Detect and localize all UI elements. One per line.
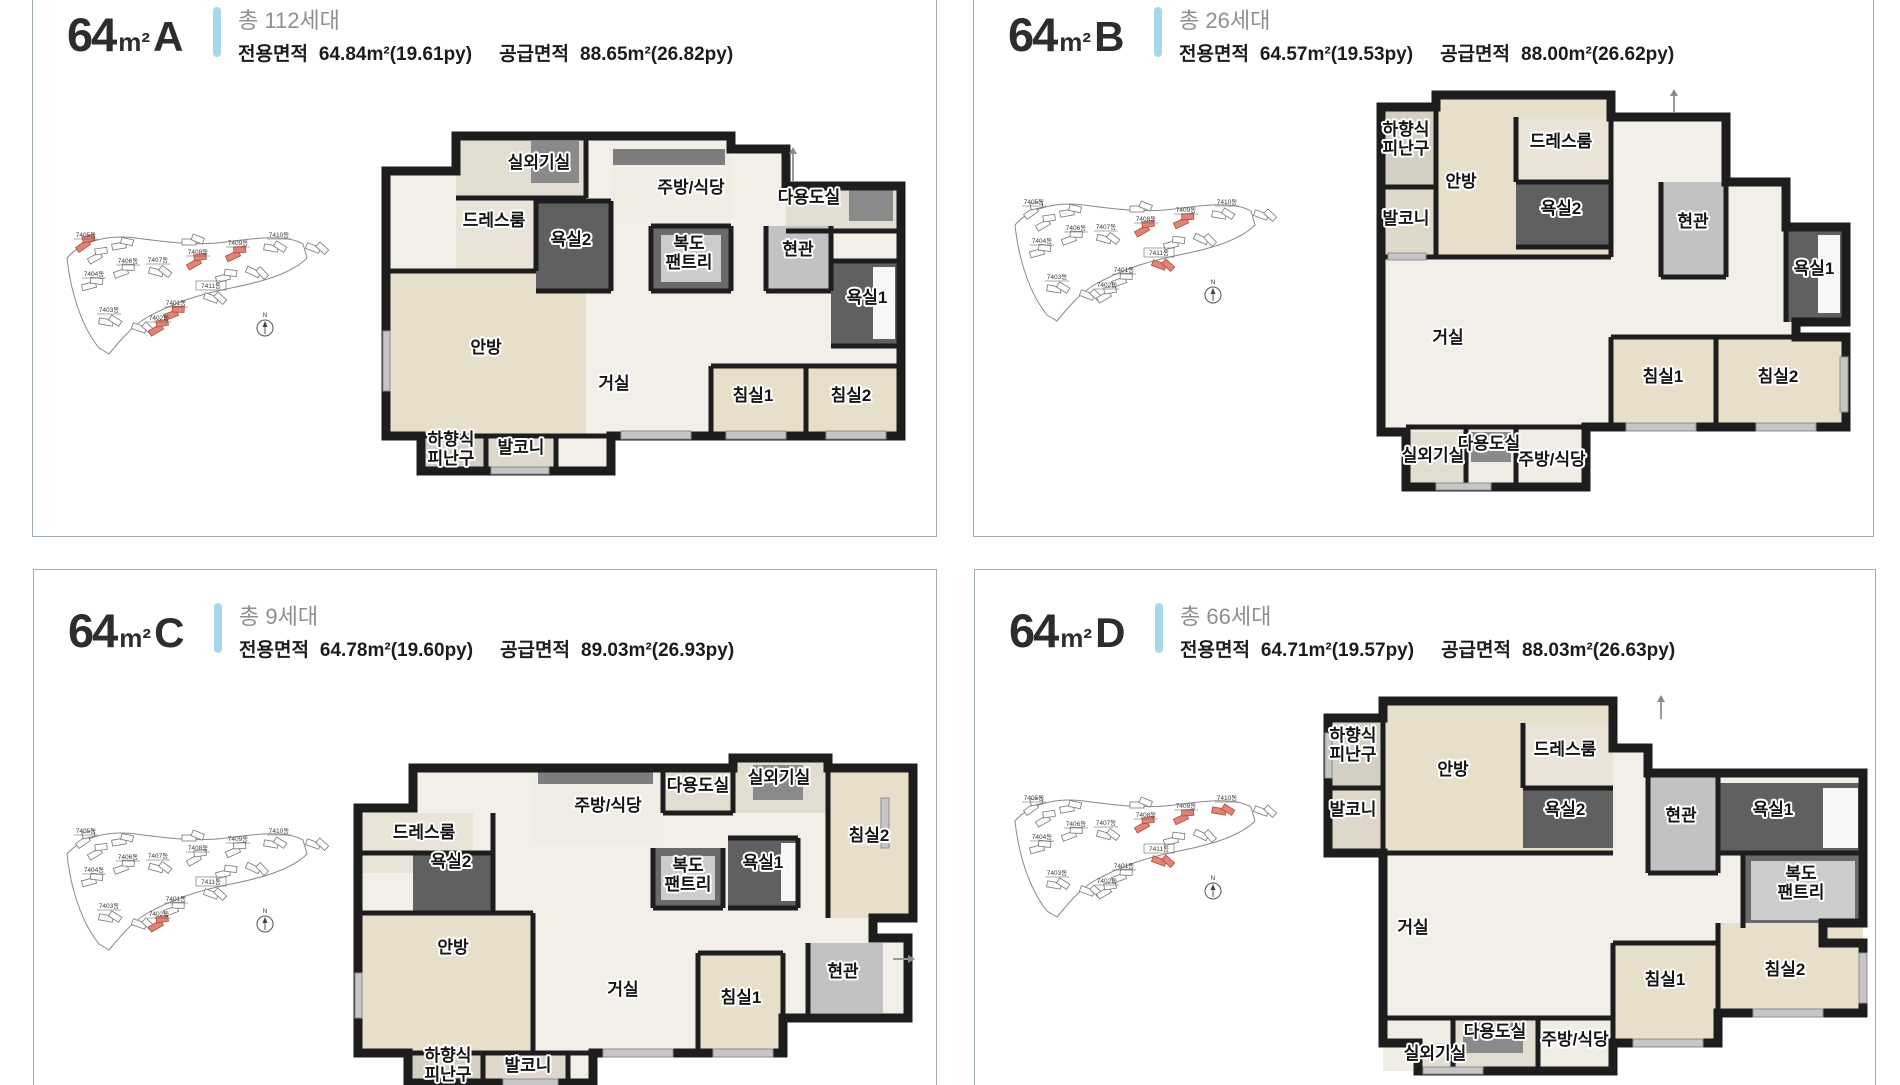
- room-label: 침실1: [721, 987, 762, 1007]
- unit-type-letter: D: [1095, 609, 1125, 657]
- site-building-label: 7409동: [1176, 206, 1196, 214]
- site-building: [1253, 205, 1278, 223]
- room-label: 침실2: [831, 385, 872, 405]
- area-info: 전용면적64.57m²(19.53py)공급면적88.00m²(26.62py): [1179, 39, 1701, 66]
- unit-info: 총 112세대 전용면적64.84m²(19.61py)공급면적88.65m²(…: [238, 7, 760, 66]
- supply-area-value: 88.03m²(26.63py): [1522, 640, 1675, 661]
- window-mark: [621, 431, 691, 439]
- room-label: 거실: [1397, 918, 1428, 937]
- site-building-label: 7406동: [118, 257, 138, 265]
- site-building: [182, 830, 204, 841]
- window-mark: [503, 1079, 558, 1085]
- window-mark: [1756, 423, 1816, 431]
- site-building-label: 7403동: [99, 306, 119, 314]
- room-label: 주방/식당: [1518, 450, 1586, 469]
- site-location-map: 7405동7406동7407동7408동7409동7410동7404동7411동…: [1009, 779, 1309, 941]
- room-label: 현관: [827, 962, 859, 981]
- room-label: 다용도실: [667, 776, 730, 795]
- site-building-label: 7406동: [118, 853, 138, 861]
- unit-title: 64m²C: [68, 603, 214, 658]
- room-label: 욕실2: [551, 230, 592, 249]
- room-label: 침실2: [1765, 959, 1806, 979]
- room-label: 침실1: [1643, 366, 1684, 386]
- room-label: 발코니: [1383, 209, 1430, 228]
- site-building-label: 7410동: [1217, 794, 1237, 802]
- room-label: 욕실2: [431, 852, 472, 871]
- room-label: 현관: [782, 240, 814, 259]
- room-label: 하향식피난구: [425, 1045, 472, 1084]
- room-label: 드레스룸: [393, 823, 456, 842]
- unit-header: 64m²D 총 66세대 전용면적64.71m²(19.57py)공급면적88.…: [1009, 603, 1702, 662]
- unit-type-letter: A: [153, 13, 183, 61]
- unit-size: 64: [68, 603, 116, 658]
- unit-info: 총 26세대 전용면적64.57m²(19.53py)공급면적88.00m²(2…: [1179, 7, 1701, 66]
- window-mark: [355, 973, 362, 1018]
- unit-title: 64m²A: [67, 7, 213, 62]
- unit-size: 64: [1009, 603, 1057, 658]
- room-label: 현관: [1665, 806, 1697, 825]
- supply-area-value: 89.03m²(26.93py): [581, 640, 734, 661]
- unit-size: 64: [67, 7, 115, 62]
- room-label: 안방: [1445, 172, 1477, 191]
- room-label: 욕실1: [743, 853, 784, 872]
- room-label: 실외기실: [1402, 446, 1465, 465]
- room-label: 드레스룸: [463, 211, 526, 230]
- room-label: 드레스룸: [1534, 740, 1597, 759]
- room-label: 안방: [1437, 760, 1469, 779]
- room-label: 실외기실: [748, 768, 811, 787]
- site-building-label: 7408동: [1136, 215, 1156, 223]
- unit-panel-64d: 64m²D 총 66세대 전용면적64.71m²(19.57py)공급면적88.…: [974, 569, 1876, 1085]
- room-label: 하향식피난구: [428, 429, 475, 468]
- window-mark: [1840, 357, 1848, 412]
- unit-title: 64m²B: [1008, 7, 1154, 62]
- supply-area-label: 공급면적: [500, 640, 570, 661]
- floor-plan: 하향식피난구발코니안방드레스룸욕실2현관욕실1복도팬트리거실침실1침실2다용도실…: [1323, 693, 1863, 1071]
- plan-zone: [781, 843, 797, 901]
- area-info: 전용면적64.71m²(19.57py)공급면적88.03m²(26.63py): [1180, 635, 1702, 662]
- exclusive-area-value: 64.71m²(19.57py): [1261, 640, 1414, 661]
- site-building-label: 7410동: [269, 827, 289, 835]
- exclusive-area-label: 전용면적: [1180, 640, 1250, 661]
- unit-type-letter: C: [154, 609, 184, 657]
- unit-info: 총 9세대 전용면적64.78m²(19.60py)공급면적89.03m²(26…: [239, 603, 761, 662]
- room-label: 안방: [437, 938, 469, 957]
- site-building-label: 7405동: [1024, 198, 1044, 206]
- site-building-label: 7411동: [1149, 249, 1169, 257]
- room-label: 실외기실: [1404, 1044, 1467, 1063]
- room-label: 침실2: [849, 825, 890, 845]
- site-building: [1130, 797, 1152, 808]
- site-building-label: 7404동: [84, 866, 104, 874]
- window-mark: [1753, 1009, 1823, 1017]
- site-building: [1130, 201, 1152, 212]
- window-mark: [1388, 253, 1426, 260]
- room-label: 거실: [1432, 328, 1463, 347]
- site-building-label: 7402동: [1097, 281, 1117, 289]
- accent-bar: [213, 7, 221, 57]
- room-label: 현관: [1677, 212, 1709, 231]
- north-label: N: [263, 312, 268, 319]
- room-label: 다용도실: [778, 188, 841, 207]
- site-building-label: 7409동: [228, 835, 248, 843]
- room-label: 욕실2: [1541, 199, 1582, 218]
- site-building-label: 7401동: [166, 299, 186, 307]
- unit-size-unit: m²: [1060, 623, 1092, 654]
- direction-arrow-head: [1670, 89, 1678, 96]
- site-building-label: 7407동: [1096, 819, 1116, 827]
- exclusive-area-value: 64.78m²(19.60py): [320, 640, 473, 661]
- site-building-label: 7409동: [228, 239, 248, 247]
- supply-area-label: 공급면적: [1441, 640, 1511, 661]
- floor-plan: 하향식피난구발코니안방드레스룸욕실2현관욕실1거실침실1침실2실외기실다용도실주…: [1376, 87, 1861, 512]
- exclusive-area-label: 전용면적: [238, 44, 308, 65]
- room-label: 욕실1: [1753, 800, 1794, 819]
- unit-header: 64m²C 총 9세대 전용면적64.78m²(19.60py)공급면적89.0…: [68, 603, 761, 662]
- site-building-label: 7411동: [201, 878, 221, 886]
- window-mark: [1859, 953, 1867, 1003]
- room-label: 주방/식당: [1541, 1030, 1609, 1049]
- north-label: N: [1211, 279, 1216, 286]
- supply-area-label: 공급면적: [1440, 44, 1510, 65]
- room-label: 욕실1: [1794, 259, 1835, 278]
- window-mark: [491, 467, 549, 474]
- north-label: N: [263, 908, 268, 915]
- north-label: N: [1211, 875, 1216, 882]
- households-count: 총 112세대: [238, 8, 760, 33]
- room-label: 다용도실: [1458, 434, 1521, 453]
- site-building-label: 7401동: [1114, 862, 1134, 870]
- site-building-label: 7408동: [188, 844, 208, 852]
- window-mark: [1423, 1067, 1483, 1074]
- unit-title: 64m²D: [1009, 603, 1155, 658]
- room-label: 발코니: [498, 438, 545, 457]
- room-label: 드레스룸: [1530, 132, 1593, 151]
- unit-size-unit: m²: [1059, 27, 1091, 58]
- room-label: 발코니: [1330, 800, 1377, 819]
- direction-arrow-head: [1657, 695, 1665, 702]
- exclusive-area-label: 전용면적: [1179, 44, 1249, 65]
- room-label: 침실2: [1758, 366, 1799, 386]
- site-building-label: 7402동: [149, 910, 169, 918]
- unit-panel-64a: 64m²A 총 112세대 전용면적64.84m²(19.61py)공급면적88…: [32, 0, 937, 537]
- plan-zone: [358, 913, 533, 1053]
- households-count: 총 66세대: [1180, 604, 1702, 629]
- room-label: 주방/식당: [574, 796, 642, 815]
- room-label: 욕실2: [1545, 800, 1586, 819]
- unit-size-unit: m²: [119, 623, 151, 654]
- room-label: 하향식피난구: [1330, 725, 1377, 764]
- floor-plan: 드레스룸욕실2주방/식당다용도실실외기실침실2복도팬트리욕실1안방거실침실1현관…: [353, 753, 916, 1085]
- site-building-label: 7402동: [1097, 877, 1117, 885]
- exclusive-area-value: 64.84m²(19.61py): [319, 44, 472, 65]
- window-mark: [1626, 423, 1696, 431]
- accent-bar: [214, 603, 222, 653]
- site-building: [1253, 801, 1278, 819]
- supply-area-label: 공급면적: [499, 44, 569, 65]
- room-label: 욕실1: [847, 288, 888, 307]
- site-building: [305, 238, 330, 256]
- site-building-label: 7411동: [1149, 845, 1169, 853]
- households-count: 총 9세대: [239, 604, 761, 629]
- floor-plan-sheet: 64m²A 총 112세대 전용면적64.84m²(19.61py)공급면적88…: [0, 0, 1900, 1085]
- site-building-label: 7405동: [76, 827, 96, 835]
- exclusive-area-label: 전용면적: [239, 640, 309, 661]
- room-label: 침실1: [733, 385, 774, 405]
- window-mark: [726, 431, 786, 439]
- unit-header: 64m²A 총 112세대 전용면적64.84m²(19.61py)공급면적88…: [67, 7, 760, 66]
- site-building-label: 7408동: [188, 248, 208, 256]
- supply-area-value: 88.65m²(26.82py): [580, 44, 733, 65]
- plan-zone: [613, 149, 725, 165]
- accent-bar: [1154, 7, 1162, 57]
- unit-header: 64m²B 총 26세대 전용면적64.57m²(19.53py)공급면적88.…: [1008, 7, 1701, 66]
- site-building-label: 7410동: [269, 231, 289, 239]
- site-building-label: 7406동: [1066, 224, 1086, 232]
- site-building-label: 7403동: [1047, 869, 1067, 877]
- plan-zone: [1613, 943, 1718, 1043]
- room-label: 안방: [470, 338, 502, 357]
- site-building-label: 7406동: [1066, 820, 1086, 828]
- accent-bar: [1155, 603, 1163, 653]
- plan-zone: [456, 198, 536, 271]
- window-mark: [713, 1049, 773, 1057]
- site-building-label: 7403동: [1047, 273, 1067, 281]
- site-building-label: 7401동: [1114, 266, 1134, 274]
- site-building-label: 7404동: [1032, 833, 1052, 841]
- site-building-label: 7407동: [148, 256, 168, 264]
- area-info: 전용면적64.78m²(19.60py)공급면적89.03m²(26.93py): [239, 635, 761, 662]
- site-building-label: 7408동: [1136, 811, 1156, 819]
- room-label: 다용도실: [1464, 1022, 1527, 1041]
- room-label: 발코니: [505, 1056, 552, 1075]
- window-mark: [826, 431, 886, 439]
- site-building-label: 7407동: [148, 852, 168, 860]
- unit-info: 총 66세대 전용면적64.71m²(19.57py)공급면적88.03m²(2…: [1180, 603, 1702, 662]
- window-mark: [383, 331, 390, 391]
- room-label: 실외기실: [508, 153, 571, 172]
- plan-zone: [1328, 788, 1383, 853]
- window-mark: [1633, 1039, 1703, 1047]
- room-label: 하향식피난구: [1383, 119, 1430, 158]
- unit-size-unit: m²: [118, 27, 150, 58]
- unit-panel-64b: 64m²B 총 26세대 전용면적64.57m²(19.53py)공급면적88.…: [973, 0, 1874, 537]
- households-count: 총 26세대: [1179, 8, 1701, 33]
- plan-zone: [849, 189, 893, 221]
- room-label: 침실1: [1645, 969, 1686, 989]
- room-label: 거실: [598, 374, 629, 393]
- site-building-label: 7405동: [76, 231, 96, 239]
- site-building-label: 7410동: [1217, 198, 1237, 206]
- unit-panel-64c: 64m²C 총 9세대 전용면적64.78m²(19.60py)공급면적89.0…: [33, 569, 937, 1085]
- site-building-label: 7401동: [166, 895, 186, 903]
- site-location-map: 7405동7406동7407동7408동7409동7410동7404동7411동…: [61, 812, 361, 974]
- supply-area-value: 88.00m²(26.62py): [1521, 44, 1674, 65]
- site-building-label: 7403동: [99, 902, 119, 910]
- plan-zone: [1823, 788, 1858, 848]
- site-building-label: 7407동: [1096, 223, 1116, 231]
- room-label: 거실: [607, 980, 638, 999]
- site-building-label: 7405동: [1024, 794, 1044, 802]
- floor-plan: 실외기실주방/식당다용도실드레스룸욕실2복도팬트리현관욕실1안방거실침실1침실2…: [381, 131, 906, 476]
- site-location-map: 7405동7406동7407동7408동7409동7410동7404동7411동…: [1009, 183, 1309, 345]
- area-info: 전용면적64.84m²(19.61py)공급면적88.65m²(26.82py): [238, 39, 760, 66]
- site-building-label: 7404동: [84, 270, 104, 278]
- site-building-label: 7402동: [149, 314, 169, 322]
- unit-size: 64: [1008, 7, 1056, 62]
- site-building: [305, 834, 330, 852]
- site-building-label: 7404동: [1032, 237, 1052, 245]
- site-building: [182, 234, 204, 245]
- site-building-label: 7409동: [1176, 802, 1196, 810]
- room-label: 주방/식당: [657, 178, 725, 197]
- exclusive-area-value: 64.57m²(19.53py): [1260, 44, 1413, 65]
- site-location-map: 7405동7406동7407동7408동7409동7410동7404동7411동…: [61, 216, 361, 378]
- window-mark: [603, 1049, 673, 1057]
- unit-type-letter: B: [1094, 13, 1124, 61]
- window-mark: [1436, 483, 1491, 490]
- site-building-label: 7411동: [201, 282, 221, 290]
